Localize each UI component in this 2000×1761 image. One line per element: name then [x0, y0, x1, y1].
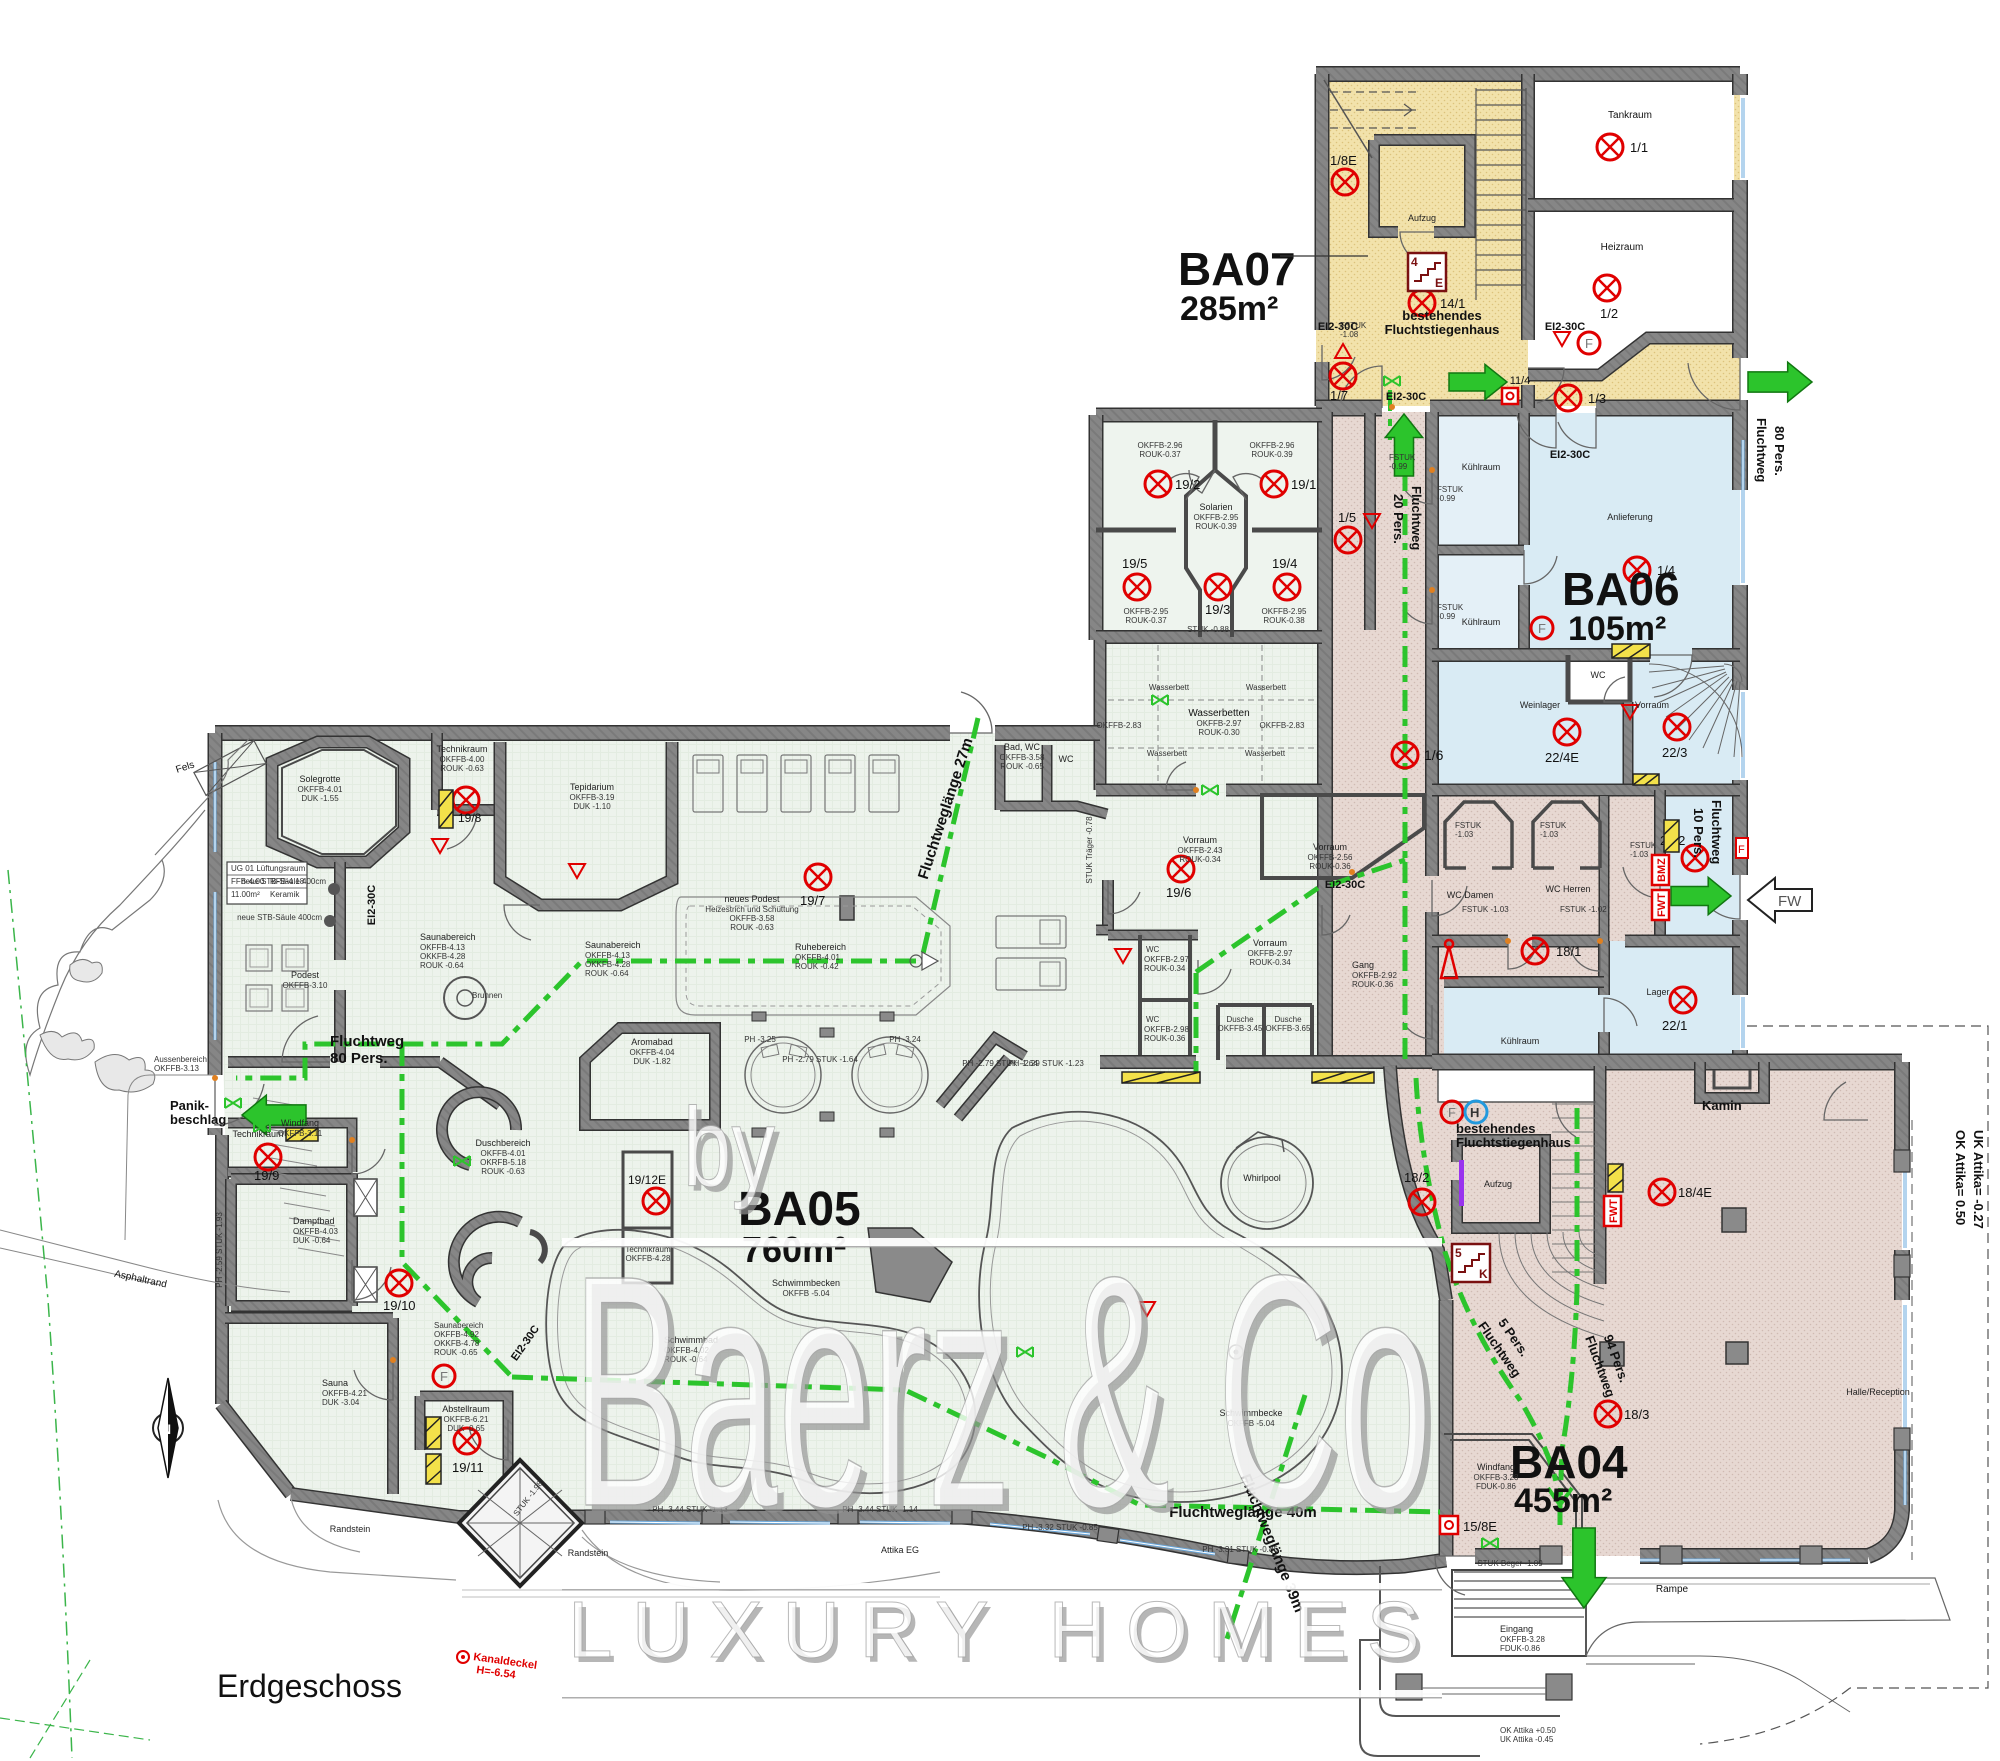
svg-text:FSTUK: FSTUK: [1455, 821, 1482, 830]
svg-text:-0.99: -0.99: [1437, 494, 1456, 503]
svg-text:19/11: 19/11: [452, 1460, 484, 1475]
svg-text:F: F: [440, 1369, 448, 1384]
svg-text:1/2: 1/2: [1600, 306, 1618, 321]
svg-text:OKFFB-3.65: OKFFB-3.65: [1266, 1024, 1311, 1033]
svg-text:WC: WC: [1146, 1015, 1160, 1024]
svg-text:Wasserbett: Wasserbett: [1149, 683, 1190, 692]
svg-text:OKFFB-3.13: OKFFB-3.13: [154, 1064, 199, 1073]
svg-text:OKFFB-2.83: OKFFB-2.83: [1097, 721, 1142, 730]
svg-text:OKFFB-4.21: OKFFB-4.21: [322, 1389, 367, 1398]
svg-text:ROUK-0.38: ROUK-0.38: [1263, 616, 1305, 625]
svg-text:ROUK-0.34: ROUK-0.34: [1249, 958, 1291, 967]
svg-text:BA06: BA06: [1562, 563, 1680, 615]
svg-text:Duschbereich: Duschbereich: [475, 1138, 530, 1148]
svg-text:bestehendes: bestehendes: [1456, 1121, 1535, 1136]
svg-text:OKFFB-2.95: OKFFB-2.95: [1194, 513, 1239, 522]
svg-text:19/8: 19/8: [458, 811, 482, 825]
svg-text:10 Pers.: 10 Pers.: [1691, 808, 1706, 858]
svg-text:DUK -0.65: DUK -0.65: [447, 1424, 485, 1433]
svg-text:PH -2.29 STUK -1.23: PH -2.29 STUK -1.23: [1008, 1059, 1084, 1068]
svg-text:Heizraum: Heizraum: [1601, 242, 1644, 253]
svg-text:K: K: [1479, 1267, 1488, 1281]
svg-text:N: N: [161, 1421, 171, 1437]
svg-text:1/3: 1/3: [1588, 391, 1606, 406]
svg-text:Kamin: Kamin: [1702, 1098, 1742, 1113]
svg-text:WC: WC: [1059, 754, 1074, 764]
svg-text:19/12E: 19/12E: [628, 1173, 666, 1187]
svg-text:-1.03: -1.03: [1455, 830, 1474, 839]
svg-text:Wasserbetten: Wasserbetten: [1188, 708, 1249, 719]
svg-text:Abstellraum: Abstellraum: [442, 1404, 490, 1414]
svg-text:Weinlager: Weinlager: [1520, 700, 1560, 710]
svg-text:Dusche: Dusche: [1226, 1015, 1254, 1024]
svg-text:ROUK-0.36: ROUK-0.36: [1309, 862, 1351, 871]
svg-text:FW: FW: [1778, 893, 1802, 910]
svg-text:Tankraum: Tankraum: [1608, 110, 1652, 121]
svg-text:BMZ: BMZ: [1656, 858, 1668, 882]
svg-text:ROUK-0.39: ROUK-0.39: [1251, 450, 1293, 459]
svg-text:DUK -1.55: DUK -1.55: [301, 794, 339, 803]
svg-text:OKRFB-5.18: OKRFB-5.18: [480, 1158, 526, 1167]
svg-text:Windfang: Windfang: [281, 1118, 319, 1128]
svg-text:OKFFB-4.04: OKFFB-4.04: [630, 1048, 675, 1057]
svg-text:OKFFB-3.19: OKFFB-3.19: [570, 793, 615, 802]
svg-text:ROUK -0.63: ROUK -0.63: [730, 923, 774, 932]
svg-text:OKFFB-2.97: OKFFB-2.97: [1248, 949, 1293, 958]
svg-text:Baerz & Co: Baerz & Co: [572, 1206, 1432, 1575]
svg-text:Gang: Gang: [1352, 960, 1374, 970]
svg-text:-0.99: -0.99: [1437, 612, 1456, 621]
svg-text:OKFFB-3.28: OKFFB-3.28: [1500, 1635, 1545, 1644]
svg-text:FSTUK: FSTUK: [1340, 321, 1367, 330]
svg-text:Saunabereich: Saunabereich: [585, 940, 641, 950]
svg-text:ROUK-0.36: ROUK-0.36: [1144, 1034, 1186, 1043]
svg-text:DUK -3.04: DUK -3.04: [322, 1398, 360, 1407]
svg-text:ROUK-0.39: ROUK-0.39: [1195, 522, 1237, 531]
svg-text:22/1: 22/1: [1662, 1018, 1687, 1033]
svg-text:Bad, WC: Bad, WC: [1004, 742, 1041, 752]
svg-text:F: F: [1585, 336, 1593, 351]
svg-text:Halle/Reception: Halle/Reception: [1846, 1387, 1910, 1397]
svg-text:OKFFB-2.97: OKFFB-2.97: [1144, 955, 1189, 964]
svg-text:F: F: [1738, 844, 1745, 856]
svg-text:19/10: 19/10: [383, 1298, 416, 1313]
svg-text:PH -2.59 STUK -1.93: PH -2.59 STUK -1.93: [215, 1212, 224, 1288]
svg-text:19/9: 19/9: [254, 1168, 279, 1183]
svg-text:ROUK-0.34: ROUK-0.34: [1144, 964, 1186, 973]
svg-text:-1.03: -1.03: [1540, 830, 1559, 839]
svg-text:PH -3.24: PH -3.24: [889, 1035, 921, 1044]
svg-text:22/3: 22/3: [1662, 745, 1687, 760]
svg-text:18/1: 18/1: [1556, 944, 1581, 959]
svg-text:Saunabereich: Saunabereich: [420, 932, 476, 942]
svg-text:Kühlraum: Kühlraum: [1501, 1036, 1540, 1046]
svg-text:Fluchtweg: Fluchtweg: [1409, 486, 1424, 550]
svg-text:20 Pers.: 20 Pers.: [1391, 494, 1406, 544]
svg-text:OKFFB-4.01: OKFFB-4.01: [298, 785, 343, 794]
svg-text:FWT: FWT: [1656, 893, 1668, 917]
svg-text:OKFFB-2.83: OKFFB-2.83: [1260, 721, 1305, 730]
svg-text:ROUK -0.65: ROUK -0.65: [434, 1348, 478, 1357]
svg-text:UG 01 Lüftungsraum: UG 01 Lüftungsraum: [231, 864, 306, 873]
svg-text:Technikraum: Technikraum: [232, 1129, 283, 1139]
svg-text:Fluchtstiegenhaus: Fluchtstiegenhaus: [1385, 322, 1500, 337]
svg-text:PH -3.25: PH -3.25: [744, 1035, 776, 1044]
svg-text:OKFFB-2.43: OKFFB-2.43: [1178, 846, 1223, 855]
svg-text:-0.99: -0.99: [1389, 462, 1408, 471]
svg-text:5: 5: [1455, 1246, 1462, 1260]
svg-text:11.00m²: 11.00m²: [231, 890, 260, 899]
svg-text:F: F: [1448, 1105, 1456, 1120]
svg-text:FSTUK: FSTUK: [1389, 453, 1416, 462]
svg-text:OKFFB-3.11: OKFFB-3.11: [278, 1129, 323, 1138]
svg-text:18/4E: 18/4E: [1678, 1185, 1712, 1200]
svg-text:Ruhebereich: Ruhebereich: [795, 942, 846, 952]
svg-text:WC: WC: [1591, 670, 1606, 680]
svg-text:Brunnen: Brunnen: [472, 991, 502, 1000]
svg-text:ROUK -0.63: ROUK -0.63: [440, 764, 484, 773]
svg-text:80 Pers.: 80 Pers.: [330, 1050, 388, 1067]
svg-text:OKFFB-2.98: OKFFB-2.98: [1144, 1025, 1189, 1034]
svg-text:ROUK -0.64: ROUK -0.64: [585, 969, 629, 978]
svg-text:DUK -1.82: DUK -1.82: [633, 1057, 671, 1066]
svg-text:OKFFB-6.21: OKFFB-6.21: [444, 1415, 489, 1424]
svg-text:-1.08: -1.08: [1340, 330, 1359, 339]
svg-text:OKFFB-2.97: OKFFB-2.97: [1197, 719, 1242, 728]
svg-text:OKKFB-4.28: OKKFB-4.28: [420, 952, 466, 961]
svg-text:OKFFB-4.03: OKFFB-4.03: [293, 1227, 338, 1236]
svg-text:Kühlraum: Kühlraum: [1462, 462, 1501, 472]
svg-text:22/4E: 22/4E: [1545, 750, 1579, 765]
svg-text:ROUK -0.64: ROUK -0.64: [420, 961, 464, 970]
svg-text:Kühlraum: Kühlraum: [1462, 617, 1501, 627]
svg-text:Panik-: Panik-: [170, 1098, 209, 1113]
svg-text:EI2-30C: EI2-30C: [1550, 449, 1590, 461]
svg-text:OKFFB-3.58: OKFFB-3.58: [730, 914, 775, 923]
svg-text:Aussenbereich: Aussenbereich: [154, 1055, 207, 1064]
svg-text:F: F: [1538, 621, 1546, 636]
svg-text:FSTUK: FSTUK: [1437, 603, 1464, 612]
svg-text:WC Herren: WC Herren: [1545, 884, 1590, 894]
svg-text:Whirlpool: Whirlpool: [1243, 1173, 1281, 1183]
svg-text:neue STB-Säule 400cm: neue STB-Säule 400cm: [241, 877, 326, 886]
svg-text:19/2: 19/2: [1175, 477, 1200, 492]
svg-text:455m²: 455m²: [1514, 1482, 1612, 1520]
svg-text:Wasserbett: Wasserbett: [1147, 749, 1188, 758]
svg-text:BA07: BA07: [1178, 243, 1296, 295]
svg-text:OK Attika +0.50: OK Attika +0.50: [1500, 1726, 1556, 1735]
svg-text:Fluchtstiegenhaus: Fluchtstiegenhaus: [1456, 1135, 1571, 1150]
svg-text:1/5: 1/5: [1338, 510, 1356, 525]
svg-text:BA04: BA04: [1510, 1436, 1628, 1488]
svg-text:19/3: 19/3: [1205, 602, 1230, 617]
svg-text:Keramik: Keramik: [270, 890, 300, 899]
svg-text:ROUK-0.30: ROUK-0.30: [1198, 728, 1240, 737]
svg-text:beschlag: beschlag: [170, 1112, 226, 1127]
svg-text:Vorraum: Vorraum: [1183, 835, 1217, 845]
svg-text:bestehendes: bestehendes: [1402, 308, 1481, 323]
svg-text:OKFFB-4.00: OKFFB-4.00: [440, 755, 485, 764]
svg-text:WC Damen: WC Damen: [1447, 890, 1494, 900]
svg-text:Fluchtweg: Fluchtweg: [330, 1033, 404, 1050]
svg-text:OKKFB-4.78: OKKFB-4.78: [434, 1339, 480, 1348]
svg-text:1/7: 1/7: [1330, 388, 1348, 403]
svg-text:Sauna: Sauna: [322, 1378, 348, 1388]
svg-text:UK Attika= -0.27: UK Attika= -0.27: [1971, 1130, 1986, 1229]
svg-text:Eingang: Eingang: [1500, 1624, 1533, 1634]
svg-text:FSTUK: FSTUK: [1540, 821, 1567, 830]
svg-text:E: E: [1435, 276, 1443, 290]
svg-text:OKFFB-2.95: OKFFB-2.95: [1124, 607, 1169, 616]
svg-text:Wasserbett: Wasserbett: [1246, 683, 1287, 692]
svg-text:ROUK -0.42: ROUK -0.42: [795, 962, 839, 971]
svg-text:STUK Beger -1.09: STUK Beger -1.09: [1477, 1559, 1543, 1568]
svg-text:Wasserbett: Wasserbett: [1245, 749, 1286, 758]
svg-text:19/5: 19/5: [1122, 556, 1147, 571]
svg-text:Vorraum: Vorraum: [1253, 938, 1287, 948]
svg-text:OKFFB-2.95: OKFFB-2.95: [1262, 607, 1307, 616]
svg-text:by: by: [683, 1085, 775, 1210]
svg-text:OKFFB-4.01: OKFFB-4.01: [481, 1149, 526, 1158]
svg-text:UK Attika -0.45: UK Attika -0.45: [1500, 1735, 1554, 1744]
svg-text:PH -2.79 STUK -1.64: PH -2.79 STUK -1.64: [782, 1055, 858, 1064]
svg-text:EI2-30C: EI2-30C: [1545, 321, 1585, 333]
svg-text:Aufzug: Aufzug: [1484, 1179, 1512, 1189]
svg-text:1/6: 1/6: [1424, 747, 1444, 763]
svg-text:OKFFB-2.56: OKFFB-2.56: [1308, 853, 1353, 862]
svg-text:DUK -1.10: DUK -1.10: [573, 802, 611, 811]
svg-text:OKFFB-4.01: OKFFB-4.01: [795, 953, 840, 962]
svg-text:OKFFB-3.58: OKFFB-3.58: [1000, 753, 1045, 762]
svg-text:19/7: 19/7: [800, 893, 825, 908]
svg-text:Vorraum: Vorraum: [1635, 700, 1669, 710]
svg-text:Dusche: Dusche: [1274, 1015, 1302, 1024]
svg-text:Fluchtweg: Fluchtweg: [1709, 800, 1724, 864]
svg-text:Fluchtweg: Fluchtweg: [1754, 418, 1769, 482]
svg-text:Saunabereich: Saunabereich: [434, 1321, 483, 1330]
svg-text:DUK -0.64: DUK -0.64: [293, 1236, 331, 1245]
svg-text:FDUK-0.86: FDUK-0.86: [1500, 1644, 1541, 1653]
svg-text:ROUK-0.36: ROUK-0.36: [1352, 980, 1394, 989]
svg-text:neue STB-Säule 400cm: neue STB-Säule 400cm: [237, 913, 322, 922]
svg-text:OKFFB-3.45: OKFFB-3.45: [1218, 1024, 1263, 1033]
svg-text:STUK -0.88: STUK -0.88: [1187, 625, 1229, 634]
svg-text:Heizestrich und Schüttung: Heizestrich und Schüttung: [705, 905, 798, 914]
svg-text:OKFFB-2.96: OKFFB-2.96: [1250, 441, 1295, 450]
svg-text:EI2-30C: EI2-30C: [366, 885, 378, 925]
svg-text:Vorraum: Vorraum: [1313, 842, 1347, 852]
svg-text:OKFFB-4.92: OKFFB-4.92: [434, 1330, 479, 1339]
svg-text:OKFFB-3.10: OKFFB-3.10: [283, 981, 328, 990]
svg-text:ROUK-0.37: ROUK-0.37: [1139, 450, 1181, 459]
svg-text:1/8E: 1/8E: [1330, 153, 1357, 168]
svg-text:Aufzug: Aufzug: [1408, 213, 1436, 223]
svg-text:FDUK-0.86: FDUK-0.86: [1476, 1482, 1517, 1491]
svg-text:Technikraum: Technikraum: [436, 744, 487, 754]
svg-text:Randstein: Randstein: [330, 1524, 371, 1534]
svg-text:18/3: 18/3: [1624, 1407, 1649, 1422]
svg-text:Solegrotte: Solegrotte: [299, 774, 340, 784]
svg-text:Anlieferung: Anlieferung: [1607, 512, 1653, 522]
svg-text:15/8E: 15/8E: [1463, 1519, 1497, 1534]
svg-text:OKFFB-4.13: OKFFB-4.13: [420, 943, 465, 952]
svg-text:ROUK-0.34: ROUK-0.34: [1179, 855, 1221, 864]
svg-text:ROUK-0.37: ROUK-0.37: [1125, 616, 1167, 625]
svg-text:H: H: [1470, 1105, 1479, 1120]
svg-text:18/2: 18/2: [1404, 1170, 1429, 1185]
svg-text:1/1: 1/1: [1630, 140, 1648, 155]
svg-text:Lager: Lager: [1646, 987, 1669, 997]
svg-text:OKFFB-4.13: OKFFB-4.13: [585, 951, 630, 960]
svg-text:ROUK -0.65: ROUK -0.65: [1000, 762, 1044, 771]
svg-text:105m²: 105m²: [1568, 610, 1666, 648]
svg-text:-1.03: -1.03: [1630, 850, 1649, 859]
svg-text:STUK Träger -0.78: STUK Träger -0.78: [1085, 816, 1094, 884]
svg-text:Erdgeschoss: Erdgeschoss: [217, 1668, 402, 1704]
svg-text:Dampfbad: Dampfbad: [293, 1216, 335, 1226]
svg-text:OKFFB-3.28: OKFFB-3.28: [1474, 1473, 1519, 1482]
svg-text:FSTUK -1.03: FSTUK -1.03: [1462, 905, 1509, 914]
svg-text:WC: WC: [1146, 945, 1160, 954]
svg-text:OKFFB-2.96: OKFFB-2.96: [1138, 441, 1183, 450]
svg-text:Tepidarium: Tepidarium: [570, 782, 614, 792]
svg-text:EI2-30C: EI2-30C: [1386, 391, 1426, 403]
svg-text:neues Podest: neues Podest: [724, 894, 780, 904]
svg-text:4: 4: [1411, 255, 1418, 269]
svg-text:FWT: FWT: [1608, 1199, 1620, 1223]
svg-text:19/1: 19/1: [1291, 477, 1316, 492]
svg-text:11/4: 11/4: [1510, 375, 1531, 387]
svg-text:ROUK -0.63: ROUK -0.63: [481, 1167, 525, 1176]
svg-text:19/4: 19/4: [1272, 556, 1297, 571]
svg-text:80 Pers.: 80 Pers.: [1772, 426, 1787, 476]
svg-text:Windfang: Windfang: [1477, 1462, 1515, 1472]
svg-text:FSTUK -1.02: FSTUK -1.02: [1560, 905, 1607, 914]
svg-text:285m²: 285m²: [1180, 290, 1278, 328]
svg-text:FSTUK: FSTUK: [1437, 485, 1464, 494]
svg-text:19/6: 19/6: [1166, 885, 1191, 900]
svg-text:Rampe: Rampe: [1656, 1584, 1689, 1595]
svg-text:EI2-30C: EI2-30C: [1325, 879, 1365, 891]
svg-text:OKFFB-2.92: OKFFB-2.92: [1352, 971, 1397, 980]
svg-text:FSTUK: FSTUK: [1630, 841, 1657, 850]
svg-text:Aromabad: Aromabad: [631, 1037, 673, 1047]
svg-text:Podest: Podest: [291, 970, 320, 980]
svg-text:Solarien: Solarien: [1199, 502, 1232, 512]
svg-text:OK Attika= 0.50: OK Attika= 0.50: [1953, 1130, 1968, 1225]
svg-text:OKKFB-4.28: OKKFB-4.28: [585, 960, 631, 969]
